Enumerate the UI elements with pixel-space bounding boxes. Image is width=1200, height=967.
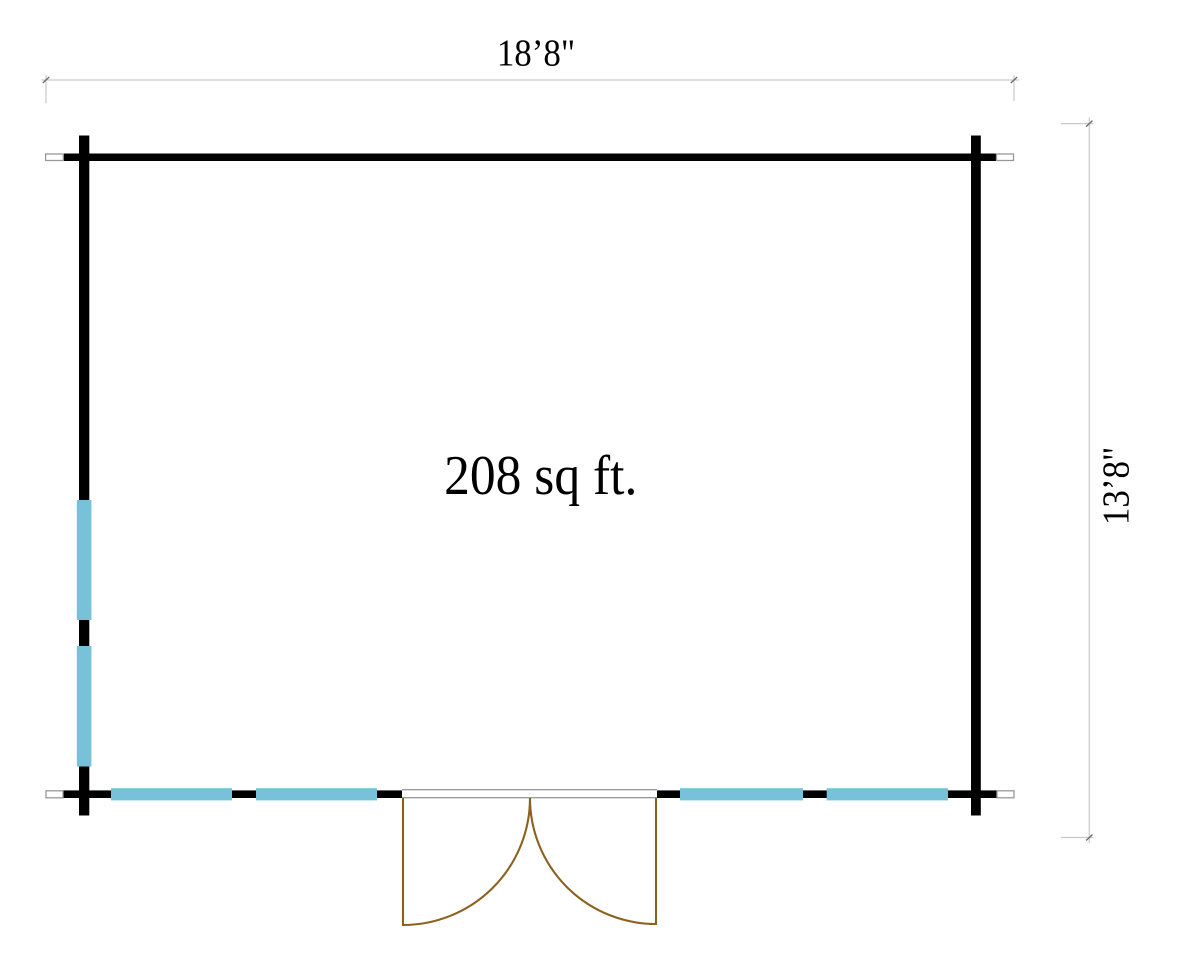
svg-text:18’8": 18’8": [497, 31, 575, 74]
svg-text:13’8": 13’8": [1094, 447, 1137, 525]
svg-text:208 sq ft.: 208 sq ft.: [444, 444, 637, 506]
